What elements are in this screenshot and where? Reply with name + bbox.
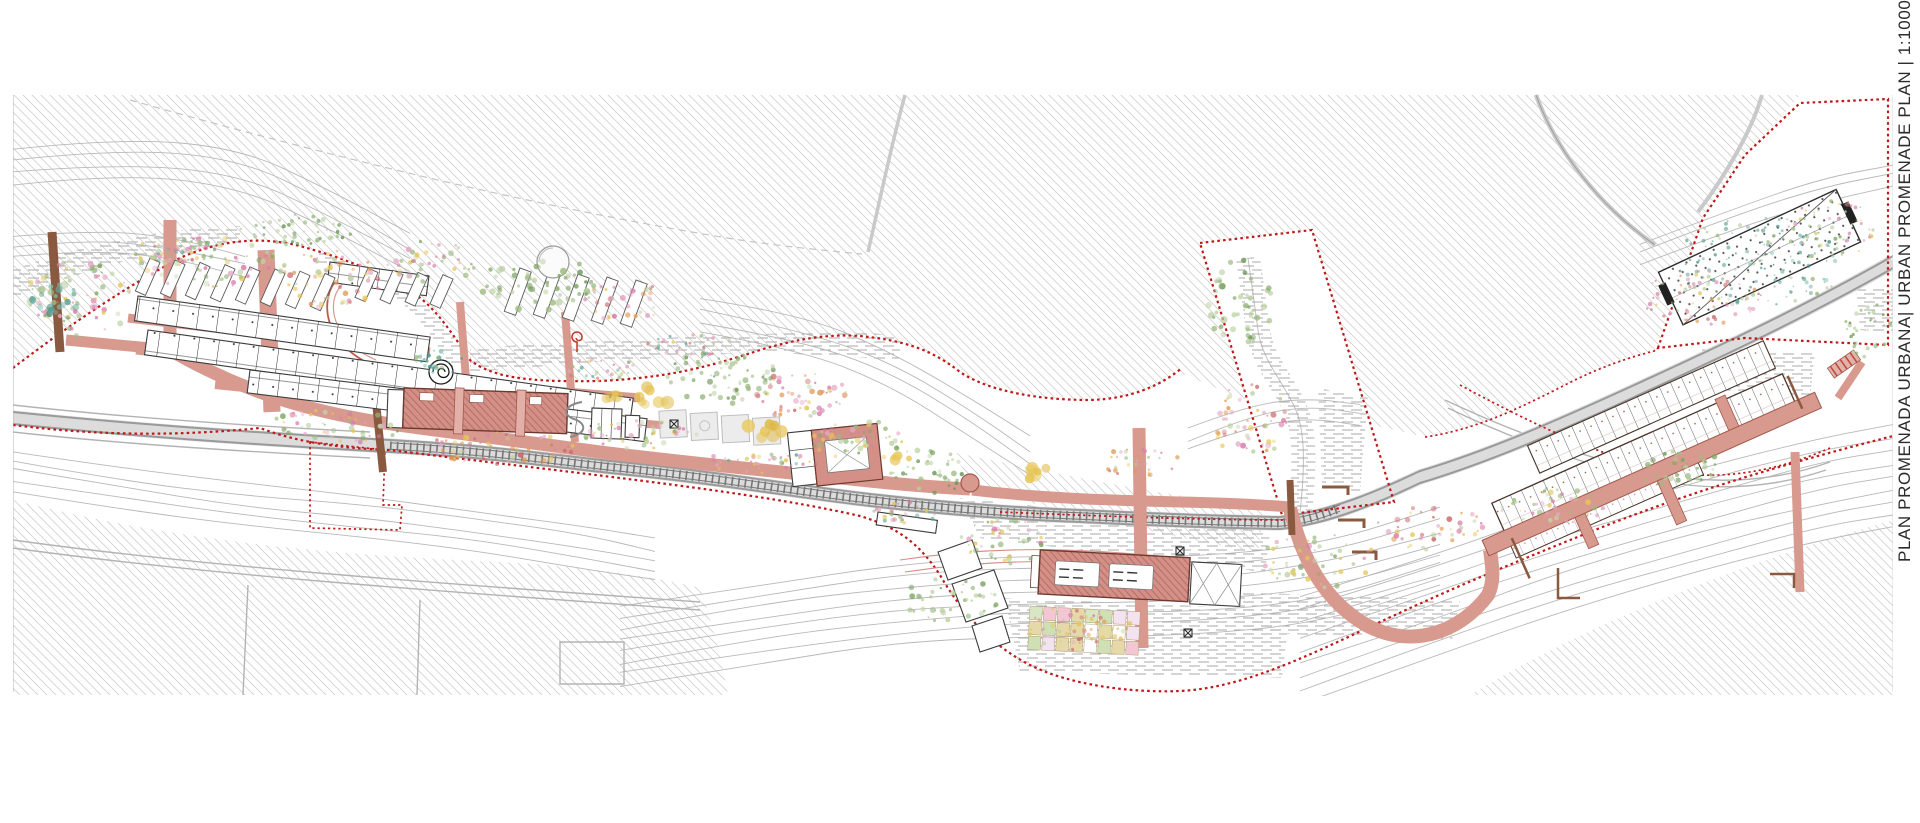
tree [813,444,817,448]
tree [980,581,986,587]
tree [497,292,500,295]
tree [283,421,285,423]
tree [428,262,431,265]
tree [1766,219,1768,221]
tree [315,223,319,227]
tree [1231,312,1236,317]
tree [983,610,986,613]
tree [1042,634,1047,639]
tree [838,403,841,406]
tree [332,223,335,226]
tree [355,439,358,442]
tree [48,284,53,289]
tree [1837,217,1841,221]
tree [1789,290,1791,292]
tree [970,550,972,552]
tree [548,457,554,463]
tree [1819,243,1823,247]
tree [993,593,996,596]
tree [675,350,678,353]
tree [326,296,330,300]
tree [1219,283,1225,289]
tree [1573,496,1578,501]
tree [1144,462,1148,466]
tree [1462,533,1465,536]
tree [820,408,825,413]
tree [1851,223,1853,225]
tree [619,367,621,369]
tree [462,354,465,357]
tree [835,401,837,403]
tree [1681,458,1685,462]
tree [641,400,650,409]
tree [600,285,603,288]
tree [1553,505,1557,509]
tree [1537,510,1543,516]
tree [1551,499,1555,503]
tree [933,577,937,581]
tree [1409,511,1412,514]
tree [1848,232,1851,235]
tree [723,376,727,380]
tree [1721,296,1723,298]
tree [639,310,643,314]
tree [155,266,157,268]
tree [1805,280,1809,284]
tree [1223,410,1228,415]
tree [830,438,832,440]
tree [1301,573,1304,576]
tree [1726,258,1728,260]
tree [298,217,300,219]
tree [1433,506,1436,509]
tree [224,274,229,279]
tree [989,552,994,557]
tree [166,254,168,256]
tree [65,315,69,319]
tree [92,304,98,310]
tree [1798,234,1802,238]
tree [505,433,508,436]
tree [313,275,317,279]
tree [1748,271,1750,273]
tree [1655,304,1657,306]
tree [397,263,401,267]
tree [260,259,265,264]
tree [1702,239,1706,243]
tree [661,440,667,446]
tree [1307,540,1310,543]
tree [619,373,623,377]
tree [781,386,784,389]
tree [890,518,895,523]
tree [72,301,74,303]
tree [571,373,573,375]
tree [1692,303,1694,305]
tree [1436,524,1440,528]
tree [1090,637,1093,640]
tree [1789,240,1793,244]
tree [307,238,311,242]
tree [827,403,832,408]
tree [1243,270,1248,275]
tree [300,410,302,412]
tree [1786,296,1788,298]
tree [61,261,65,265]
tree [571,444,575,448]
tree [1099,616,1103,620]
tree [1286,565,1288,567]
tree [1249,338,1255,344]
tree [883,427,888,432]
tree [282,263,286,267]
tree [167,258,172,263]
tree [1219,269,1225,275]
tree [1240,443,1246,449]
tree [891,514,894,517]
tree [1409,544,1413,548]
tree [918,508,920,510]
tree [94,274,99,279]
tree [1689,259,1691,261]
tree [951,458,954,461]
tree [777,376,782,381]
tree [1686,277,1690,281]
tree [1808,224,1811,227]
tree [1727,220,1729,222]
tree [940,587,942,589]
tree [324,424,326,426]
tree [1804,218,1806,220]
tree [118,283,123,288]
tree [1814,232,1817,235]
tree [1830,225,1834,229]
tree [1255,385,1259,389]
tree [795,453,799,457]
tree [86,294,88,296]
tree [676,366,681,371]
tree [558,274,561,277]
tree [1735,252,1737,254]
tree [470,263,473,266]
tree [1271,572,1274,575]
tree [178,264,180,266]
tree [472,266,476,270]
tree [1686,463,1688,465]
tree [57,263,61,267]
tree [284,243,288,247]
tree [705,352,708,355]
tree [613,286,616,289]
tree [1265,449,1269,453]
tree [666,375,670,379]
tree [59,302,66,309]
tree [1545,487,1548,490]
tree [1272,561,1275,564]
tree [525,274,532,281]
tree [609,437,612,440]
tree [757,455,761,459]
tree [951,471,957,477]
tree [381,423,387,429]
tree [205,264,207,266]
tree [141,242,144,245]
tree [1560,492,1563,495]
tree [267,266,271,270]
tree [1734,268,1737,271]
tree [1298,564,1304,570]
tree [1697,270,1700,273]
tree [610,423,613,426]
tree [1710,298,1714,302]
tree [717,467,721,471]
tree [889,472,892,475]
tree [1712,454,1718,460]
tree [1855,352,1858,355]
tree [1828,217,1831,220]
tree [591,375,594,378]
tree [1698,281,1702,285]
tree [790,465,792,467]
tree [771,374,777,380]
tree [1674,453,1677,456]
tree [453,440,458,445]
tree [1119,636,1123,640]
tree [617,376,621,380]
tree [263,274,266,277]
tree [1806,290,1808,292]
tree [388,422,394,428]
tree [974,593,978,597]
tree [1299,547,1302,550]
tree [198,247,201,250]
tree [1705,245,1707,247]
tree [1246,419,1249,422]
tree [843,439,848,444]
tree [584,434,589,439]
tree [724,457,726,459]
tree [1656,292,1660,296]
tree [347,298,352,303]
tree [1108,469,1111,472]
tree [1221,316,1228,323]
tree [362,296,367,301]
tree [728,365,733,370]
tree [439,349,444,354]
tree [612,314,617,319]
tree [1680,284,1683,287]
tree [896,431,900,435]
tree [775,425,788,438]
tree [1208,312,1214,318]
tree [298,294,303,299]
tree [48,289,55,296]
tree [187,259,189,261]
tree [771,456,775,460]
tree [1572,521,1574,523]
tree [727,459,730,462]
tree [460,357,463,360]
tree [795,462,798,465]
tree [1685,309,1687,311]
tree [900,440,903,443]
tree [1369,547,1373,551]
tree [1363,557,1366,560]
tree [1265,546,1270,551]
tree [1473,519,1477,523]
tree [324,268,328,272]
tree [1286,538,1288,540]
tree [203,245,208,250]
tree [1321,564,1325,568]
tree [635,419,638,422]
tree [1829,199,1833,203]
tree [932,471,937,476]
tree [1799,218,1802,221]
tree [1267,318,1273,324]
tree [439,443,443,447]
tree [453,435,455,437]
tree [1779,233,1781,235]
tree [1110,456,1112,458]
tree [313,300,316,303]
tree [451,371,454,374]
tree [672,341,675,344]
tree [1058,629,1062,633]
tree [1663,452,1667,456]
tree [479,442,481,444]
tree [898,515,903,520]
tree [291,432,293,434]
tree [1072,629,1076,633]
tree [419,262,424,267]
tree [804,406,809,411]
tree [522,457,527,462]
tree [1585,499,1591,505]
tree [1701,276,1705,280]
tree [88,262,94,268]
tree [727,396,730,399]
tree [563,449,567,453]
tree [1836,242,1838,244]
tree [688,370,693,375]
tree [457,246,460,249]
tree [1256,409,1259,412]
tree [1774,285,1776,287]
tree [271,254,275,258]
tree [1456,528,1461,533]
tree [1645,478,1648,481]
tree [1039,543,1044,548]
tree [157,259,161,263]
tree [35,279,40,284]
tree [1470,512,1475,517]
tree [634,315,636,317]
tree [895,476,898,479]
tree [1833,259,1837,263]
tree [326,229,328,231]
tree [505,436,510,441]
tree [1238,294,1243,299]
tree [601,316,606,321]
tree [996,518,1000,522]
tree [1677,309,1680,312]
tree [620,437,622,439]
tree [584,293,587,296]
tree [1700,478,1703,481]
tree [627,372,629,374]
tree [1090,617,1094,621]
tree [1317,544,1321,548]
tree [1664,475,1669,480]
tree [809,461,811,463]
tree [515,448,518,451]
tree [1726,246,1730,250]
tree [1050,624,1055,629]
tree [901,471,905,475]
tree [1685,239,1688,242]
tree [170,255,173,258]
tree [291,240,294,243]
tree [1716,234,1720,238]
tree [685,342,688,345]
tree [216,285,218,287]
tree [1148,472,1153,477]
tree [793,398,799,404]
tree [787,391,790,394]
tree [1041,464,1050,473]
tree [218,278,221,281]
tree [915,448,921,454]
tree [1524,510,1526,512]
tree [652,314,655,317]
tree [157,244,160,247]
tree [938,473,942,477]
tree [213,248,216,251]
tree [1748,262,1752,266]
tree [1230,326,1236,332]
tree [1313,558,1318,563]
tree [1850,204,1853,207]
tree [315,240,318,243]
tree [1761,229,1765,233]
tree [201,254,206,259]
tree [779,460,784,465]
tree [430,363,435,368]
tree [1806,264,1810,268]
tree [798,454,802,458]
tree [594,374,596,376]
tree [68,279,72,283]
tree [1871,228,1874,231]
tree [1432,516,1435,519]
tree [1216,277,1222,283]
tree [432,264,436,268]
tree [1779,238,1781,240]
tree [1645,462,1651,468]
tree [1774,274,1776,276]
tree [1248,425,1254,431]
tree [678,347,680,349]
tree [1703,287,1707,291]
tree [1228,389,1230,391]
tree [684,394,690,400]
tree [253,235,257,239]
tree [974,524,976,526]
tree [953,487,956,490]
tree [347,419,352,424]
site-plan-canvas: PLAN PROMENADA URBANA| URBAN PROMENADE P… [0,0,1920,823]
